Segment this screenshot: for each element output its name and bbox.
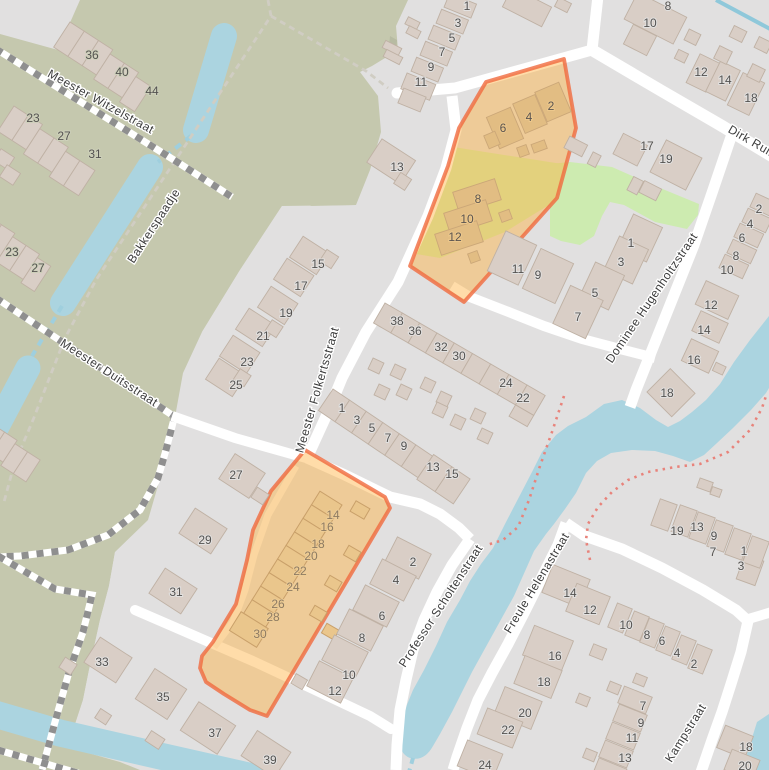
svg-text:9: 9 xyxy=(711,529,718,543)
svg-text:20: 20 xyxy=(738,759,752,770)
svg-text:13: 13 xyxy=(426,460,440,474)
svg-text:4: 4 xyxy=(747,217,754,231)
svg-text:39: 39 xyxy=(263,753,277,767)
svg-text:27: 27 xyxy=(57,129,71,143)
svg-text:17: 17 xyxy=(640,139,654,153)
svg-text:4: 4 xyxy=(526,110,533,124)
svg-text:33: 33 xyxy=(95,655,109,669)
svg-text:1: 1 xyxy=(628,236,635,250)
svg-text:29: 29 xyxy=(198,533,212,547)
svg-text:6: 6 xyxy=(659,634,666,648)
svg-text:9: 9 xyxy=(428,60,435,74)
svg-text:22: 22 xyxy=(293,564,307,578)
svg-text:12: 12 xyxy=(328,684,342,698)
svg-text:5: 5 xyxy=(449,31,456,45)
svg-text:1: 1 xyxy=(464,0,471,13)
svg-text:30: 30 xyxy=(452,349,466,363)
svg-text:40: 40 xyxy=(115,65,129,79)
svg-text:10: 10 xyxy=(460,212,474,226)
svg-text:9: 9 xyxy=(401,439,408,453)
svg-text:8: 8 xyxy=(665,0,672,13)
svg-text:21: 21 xyxy=(256,329,270,343)
svg-text:14: 14 xyxy=(718,73,732,87)
svg-text:12: 12 xyxy=(694,65,708,79)
svg-text:8: 8 xyxy=(359,631,366,645)
svg-text:11: 11 xyxy=(415,75,428,89)
svg-text:31: 31 xyxy=(88,147,102,161)
svg-text:19: 19 xyxy=(279,306,293,320)
svg-text:10: 10 xyxy=(643,16,657,30)
svg-text:31: 31 xyxy=(169,585,183,599)
svg-text:3: 3 xyxy=(618,255,625,269)
svg-text:19: 19 xyxy=(659,152,673,166)
svg-text:5: 5 xyxy=(369,421,376,435)
svg-text:18: 18 xyxy=(660,386,674,400)
svg-text:25: 25 xyxy=(229,378,243,392)
svg-text:13: 13 xyxy=(390,160,404,174)
svg-text:4: 4 xyxy=(674,646,681,660)
svg-text:2: 2 xyxy=(756,202,763,216)
svg-text:24: 24 xyxy=(478,758,492,770)
svg-text:20: 20 xyxy=(518,706,532,720)
svg-text:28: 28 xyxy=(266,610,280,624)
svg-text:6: 6 xyxy=(379,609,386,623)
svg-text:7: 7 xyxy=(439,45,446,59)
svg-text:19: 19 xyxy=(670,524,684,538)
svg-text:23: 23 xyxy=(26,111,40,125)
svg-text:24: 24 xyxy=(286,580,300,594)
svg-text:15: 15 xyxy=(445,467,459,481)
svg-text:20: 20 xyxy=(304,549,318,563)
svg-text:18: 18 xyxy=(744,91,758,105)
svg-text:7: 7 xyxy=(385,431,392,445)
svg-text:7: 7 xyxy=(575,310,582,324)
svg-text:9: 9 xyxy=(535,268,542,282)
svg-text:26: 26 xyxy=(271,597,285,611)
svg-text:15: 15 xyxy=(311,257,325,271)
svg-text:17: 17 xyxy=(294,279,308,293)
svg-text:3: 3 xyxy=(455,16,462,30)
svg-text:2: 2 xyxy=(410,555,417,569)
svg-text:4: 4 xyxy=(393,573,400,587)
svg-text:36: 36 xyxy=(85,48,99,62)
svg-text:11: 11 xyxy=(626,731,639,745)
svg-text:23: 23 xyxy=(240,355,254,369)
svg-text:30: 30 xyxy=(253,627,267,641)
svg-text:36: 36 xyxy=(408,324,422,338)
svg-text:7: 7 xyxy=(710,545,717,559)
svg-text:27: 27 xyxy=(229,468,243,482)
svg-text:8: 8 xyxy=(733,249,740,263)
svg-text:5: 5 xyxy=(592,286,599,300)
svg-text:14: 14 xyxy=(697,323,711,337)
svg-text:18: 18 xyxy=(537,675,551,689)
svg-text:2: 2 xyxy=(548,99,555,113)
svg-text:12: 12 xyxy=(583,603,597,617)
svg-text:8: 8 xyxy=(475,192,482,206)
svg-text:10: 10 xyxy=(720,263,734,277)
svg-text:16: 16 xyxy=(687,353,701,367)
svg-text:35: 35 xyxy=(156,690,170,704)
svg-text:13: 13 xyxy=(690,520,704,534)
svg-text:23: 23 xyxy=(5,245,19,259)
svg-text:38: 38 xyxy=(390,314,404,328)
svg-text:27: 27 xyxy=(31,261,45,275)
svg-text:6: 6 xyxy=(500,121,507,135)
svg-text:10: 10 xyxy=(342,668,356,682)
svg-text:16: 16 xyxy=(320,520,334,534)
svg-text:7: 7 xyxy=(640,699,647,713)
svg-text:32: 32 xyxy=(434,340,448,354)
svg-text:44: 44 xyxy=(145,84,159,98)
svg-text:1: 1 xyxy=(339,401,346,415)
svg-text:8: 8 xyxy=(644,628,651,642)
svg-text:2: 2 xyxy=(691,657,698,671)
svg-text:12: 12 xyxy=(448,230,462,244)
svg-text:3: 3 xyxy=(354,413,361,427)
svg-text:12: 12 xyxy=(704,298,718,312)
svg-text:9: 9 xyxy=(638,716,645,730)
svg-text:14: 14 xyxy=(563,586,577,600)
svg-text:1: 1 xyxy=(741,544,748,558)
svg-text:24: 24 xyxy=(499,376,513,390)
svg-text:13: 13 xyxy=(618,751,632,765)
svg-text:22: 22 xyxy=(501,723,515,737)
svg-text:10: 10 xyxy=(619,618,633,632)
svg-text:37: 37 xyxy=(208,726,222,740)
svg-text:3: 3 xyxy=(738,559,745,573)
svg-text:16: 16 xyxy=(548,649,562,663)
svg-text:6: 6 xyxy=(739,231,746,245)
svg-text:18: 18 xyxy=(739,740,753,754)
svg-text:11: 11 xyxy=(512,262,525,276)
svg-text:22: 22 xyxy=(516,391,530,405)
